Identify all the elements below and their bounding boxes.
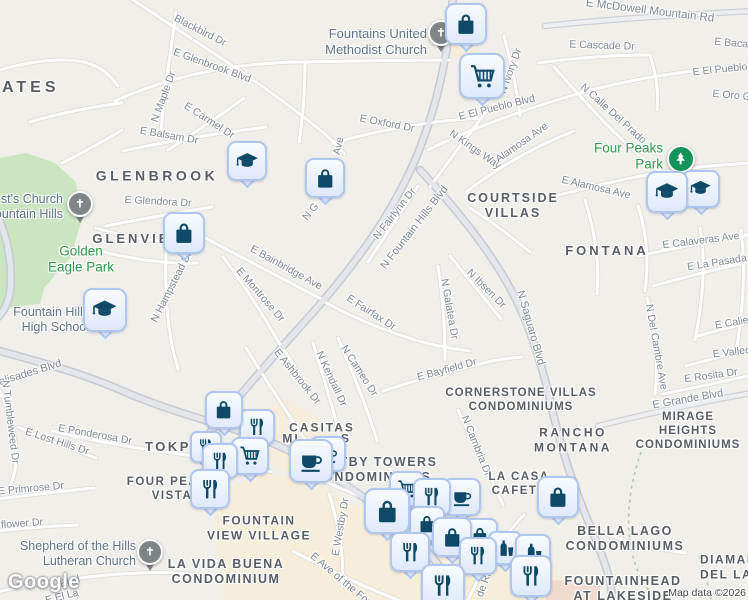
poi-label-fountain-hills-high-school[interactable]: Fountain Hills High School — [13, 305, 89, 336]
cafe-marker[interactable] — [289, 439, 333, 483]
poi-label-four-peaks-park[interactable]: Four Peaks Park — [578, 141, 663, 174]
poi-label-golden-eagle-park[interactable]: Golden Eagle Park — [48, 244, 114, 277]
restaurant-icon — [466, 544, 489, 567]
google-logo[interactable]: Google — [8, 571, 80, 594]
school-marker[interactable] — [646, 171, 688, 213]
shopping-bag-icon — [373, 497, 402, 526]
shopping-bag-marker[interactable] — [305, 158, 345, 198]
restaurant-icon — [518, 563, 544, 589]
restaurant-icon — [198, 477, 222, 501]
school-marker[interactable] — [83, 288, 127, 332]
restaurant-icon — [398, 540, 422, 564]
cafe-icon — [297, 447, 324, 474]
shopping-bag-icon — [171, 220, 197, 246]
shopping-bag-marker[interactable] — [537, 476, 579, 518]
school-icon — [235, 149, 259, 173]
shopping-cart-icon — [238, 444, 261, 467]
cafe-icon — [450, 485, 473, 508]
restaurant-marker[interactable] — [510, 555, 552, 597]
cross-icon — [72, 196, 88, 212]
shopping-bag-icon — [545, 484, 571, 510]
poi-label-christs-church-fountain-hills[interactable]: st's Church ountain Hills — [0, 192, 63, 223]
church-marker[interactable] — [67, 191, 93, 217]
restaurant-icon — [429, 572, 456, 599]
shopping-bag-icon — [453, 11, 479, 37]
poi-label-shepherd-of-the-hills-lutheran-church[interactable]: Shepherd of the Hills Lutheran Church — [20, 539, 136, 570]
park-marker[interactable] — [667, 145, 695, 173]
map-data-attribution: Map data ©2026 — [668, 587, 746, 599]
school-marker[interactable] — [227, 141, 267, 181]
restaurant-icon — [246, 416, 268, 438]
cross-icon — [142, 544, 158, 560]
church-marker[interactable] — [137, 539, 163, 565]
tree-icon — [672, 150, 689, 167]
poi-label-fountains-united-methodist-church[interactable]: Fountains United Methodist Church — [325, 26, 427, 58]
shopping-cart-icon — [468, 62, 497, 91]
shopping-bag-icon — [313, 166, 337, 190]
shopping-bag-marker[interactable] — [364, 488, 410, 534]
shopping-bag-marker[interactable] — [445, 3, 487, 45]
shopping-bag-icon — [212, 398, 235, 421]
map-canvas[interactable]: Google Map data ©2026 ATESGLENBROOKGLENV… — [0, 0, 748, 600]
school-icon — [654, 179, 680, 205]
shopping-bag-marker[interactable] — [205, 391, 243, 429]
school-icon — [689, 177, 712, 200]
restaurant-marker[interactable] — [190, 469, 230, 509]
shopping-bag-marker[interactable] — [163, 212, 205, 254]
restaurant-marker[interactable] — [421, 564, 465, 600]
school-icon — [91, 296, 118, 323]
shopping-cart-marker[interactable] — [459, 53, 505, 99]
